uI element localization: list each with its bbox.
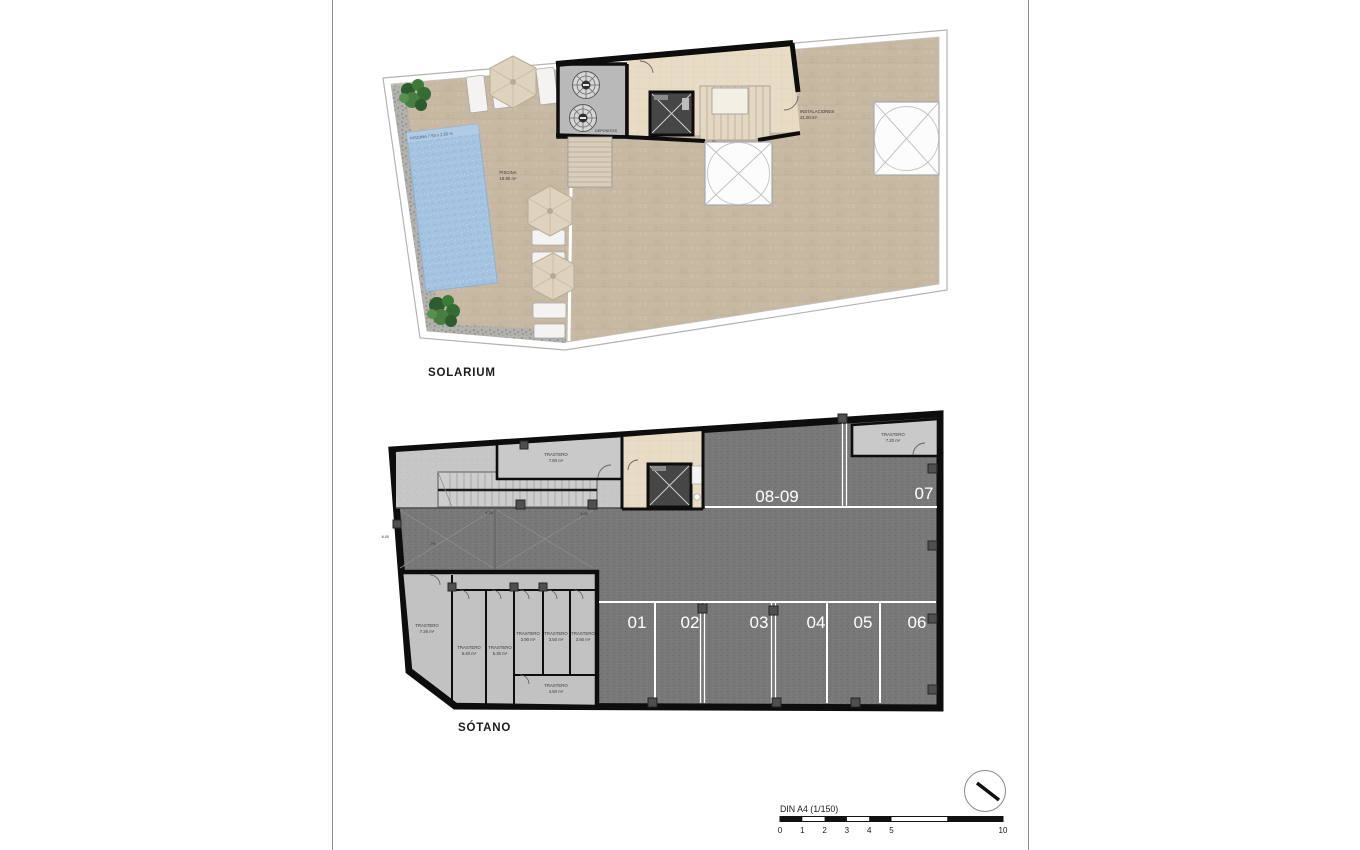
trastero-name-label: TRASTERO: [544, 452, 568, 457]
solarium-title: SOLARIUM: [428, 367, 496, 379]
trastero-name-label: TRASTERO: [415, 623, 439, 628]
trastero-area-label: 5.40 m²: [462, 651, 477, 656]
depositos-room: DEPOSITOS: [558, 64, 627, 137]
ramp-dim-label: 4.00: [580, 512, 587, 516]
storage-room: TRASTERO 7.60 m²: [497, 436, 622, 479]
toilet-icon: [694, 494, 700, 500]
trastero-name-label: TRASTERO: [544, 683, 568, 688]
trastero-area-label: 3.90 m²: [576, 637, 591, 642]
north-arrow-icon: [965, 771, 1006, 812]
scale-bar: DIN A4 (1/150) 0 1 2 3 4 5 10: [778, 804, 1008, 835]
scale-tick: 2: [822, 826, 827, 835]
tank-icon: [570, 105, 597, 132]
parking-space-label: 01: [628, 613, 647, 632]
solarium-plan: PISCINA 7.50 x 2.50 m PISCINA 18.80 m²: [383, 30, 947, 350]
parking-space-label: 06: [908, 613, 927, 632]
trastero-area-label: 7.26 m²: [420, 629, 435, 634]
scale-tick: 3: [845, 826, 850, 835]
trastero-name-label: TRASTERO: [544, 631, 568, 636]
scale-tick: 5: [889, 826, 894, 835]
parking-space-label: 04: [807, 613, 826, 632]
pool-name-label: PISCINA: [499, 170, 516, 175]
elevator-icon: [650, 92, 693, 135]
scale-tick: 10: [999, 826, 1008, 835]
parking-space-label: 02: [681, 613, 700, 632]
pool-area-label: 18.80 m²: [500, 176, 518, 181]
floorplan-drawing: PISCINA 7.50 x 2.50 m PISCINA 18.80 m²: [0, 0, 1360, 850]
storage-room: TRASTERO 7.20 m²: [852, 419, 938, 456]
parking-space-label: 05: [854, 613, 873, 632]
trastero-area-label: 3.90 m²: [521, 637, 536, 642]
trastero-name-label: TRASTERO: [488, 645, 512, 650]
skylight: [874, 102, 939, 175]
depositos-label: DEPOSITOS: [595, 129, 618, 133]
trastero-area-label: 5.30 m²: [493, 651, 508, 656]
trastero-name-label: TRASTERO: [571, 631, 595, 636]
instalaciones-name-label: INSTALACIONES: [800, 109, 834, 114]
sotano-plan: TRASTERO 7.60 m² 08-09 07 TRASTERO: [382, 414, 940, 708]
scale-tick: 4: [867, 826, 872, 835]
tank-icon: [573, 72, 600, 99]
instalaciones-area-label: 41.00 m²: [800, 115, 818, 120]
elevator-icon: [648, 464, 691, 507]
trastero-area-label: 7.20 m²: [886, 438, 901, 443]
parking-space-label: 07: [915, 484, 934, 503]
plan-sheet: PISCINA 7.50 x 2.50 m PISCINA 18.80 m²: [0, 0, 1360, 850]
trastero-area-label: 3.50 m²: [549, 637, 564, 642]
scale-tick: 1: [800, 826, 805, 835]
sink-icon: [692, 466, 702, 484]
trastero-area-label: 4.50 m²: [549, 689, 564, 694]
sotano-title: SÓTANO: [458, 721, 511, 734]
trastero-area-label: 7.60 m²: [549, 458, 564, 463]
trastero-name-label: TRASTERO: [457, 645, 481, 650]
ramp-dim-label: 4.25: [485, 511, 492, 515]
ramp-slope-label: 7%: [430, 542, 436, 546]
skylight: [705, 142, 772, 205]
trastero-name-label: TRASTERO: [516, 631, 540, 636]
trastero-name-label: TRASTERO: [881, 432, 905, 437]
scale-label: DIN A4 (1/150): [780, 804, 838, 814]
parking-space-label: 03: [750, 613, 769, 632]
stairs: [700, 86, 770, 140]
sotano-core: [622, 431, 703, 509]
ramp-dim-label: 6.00: [382, 535, 389, 539]
storage-block: TRASTERO 7.26 m² TRASTERO 5.40 m² TRASTE…: [401, 572, 597, 707]
stairs: [568, 137, 612, 187]
parking-space-label: 08-09: [755, 487, 798, 506]
scale-tick: 0: [778, 826, 783, 835]
